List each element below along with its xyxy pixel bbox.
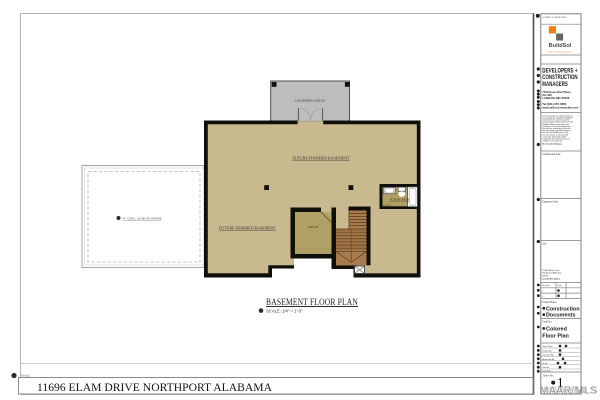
svg-text:Documents: Documents [546, 313, 576, 319]
svg-text:Architectural Seal: Architectural Seal [542, 153, 560, 156]
svg-text:BuildSol: BuildSol [549, 43, 572, 49]
svg-text:MAAR/MLS: MAAR/MLS [543, 386, 598, 397]
svg-text:MANAGERS: MANAGERS [542, 81, 568, 88]
svg-text:Project Phase: Project Phase [542, 301, 557, 304]
svg-text:BASEMENT FLOOR PLAN: BASEMENT FLOOR PLAN [266, 298, 358, 308]
svg-text:Colored: Colored [546, 326, 567, 332]
svg-text:NO PART OF THESE DWGS: NO PART OF THESE DWGS [543, 16, 568, 19]
svg-text:Drawn By: Drawn By [542, 349, 552, 352]
svg-text:Tel (301) 357-0800: Tel (301) 357-0800 [542, 102, 566, 106]
svg-text:11696 ELAM DRIVE NORTHPORT ALA: 11696 ELAM DRIVE NORTHPORT ALABAMA [37, 380, 272, 394]
svg-text:conditions on the job site.: conditions on the job site. [542, 140, 563, 143]
svg-text:Job:: Job: [542, 244, 547, 246]
svg-text:Engineers Seal: Engineers Seal [542, 201, 558, 204]
svg-text:Approved By: Approved By [542, 358, 555, 361]
svg-text:Last Rev.: Last Rev. [542, 370, 551, 373]
svg-text:Do not scale drawings.: Do not scale drawings. [542, 143, 562, 146]
svg-text:FUTURE FINISHED BASEMENT: FUTURE FINISHED BASEMENT [293, 156, 351, 160]
svg-text:www.buildsolcommunities.com: www.buildsolcommunities.com [542, 106, 579, 110]
svg-text:FUTURE BATH: FUTURE BATH [390, 198, 410, 202]
svg-text:Lot 64 The Gates: Lot 64 The Gates [542, 278, 560, 281]
svg-text:35475: 35475 [542, 275, 549, 277]
svg-text:Construction: Construction [546, 306, 580, 312]
svg-text:No. Rev: No. Rev [542, 285, 549, 287]
svg-text:COVERED PATIO: COVERED PATIO [295, 99, 325, 103]
svg-text:4" CONC. SLAB ON GRADE: 4" CONC. SLAB ON GRADE [123, 217, 162, 221]
svg-text:Northport, Alabama: Northport, Alabama [542, 272, 562, 275]
svg-text:MECH: MECH [308, 225, 318, 229]
svg-text:Cadd No:: Cadd No: [542, 322, 552, 324]
svg-text:11696 Elam Drive: 11696 Elam Drive [542, 269, 560, 272]
svg-text:LANHAM, MD 20706: LANHAM, MD 20706 [542, 96, 569, 100]
svg-text:Floor Plan: Floor Plan [542, 333, 569, 339]
svg-text:"We're building solutions": "We're building solutions" [548, 50, 573, 53]
svg-text:FIN.FLR.: FIN.FLR. [384, 205, 393, 207]
svg-text:SCALE: 1/4" = 1'-0": SCALE: 1/4" = 1'-0" [266, 309, 303, 314]
svg-text:Sheet No.: Sheet No. [543, 374, 554, 377]
svg-text:FUTURE FINISHED BASEMENT: FUTURE FINISHED BASEMENT [219, 226, 277, 230]
svg-text:Gene[1]: Gene[1] [21, 375, 30, 378]
